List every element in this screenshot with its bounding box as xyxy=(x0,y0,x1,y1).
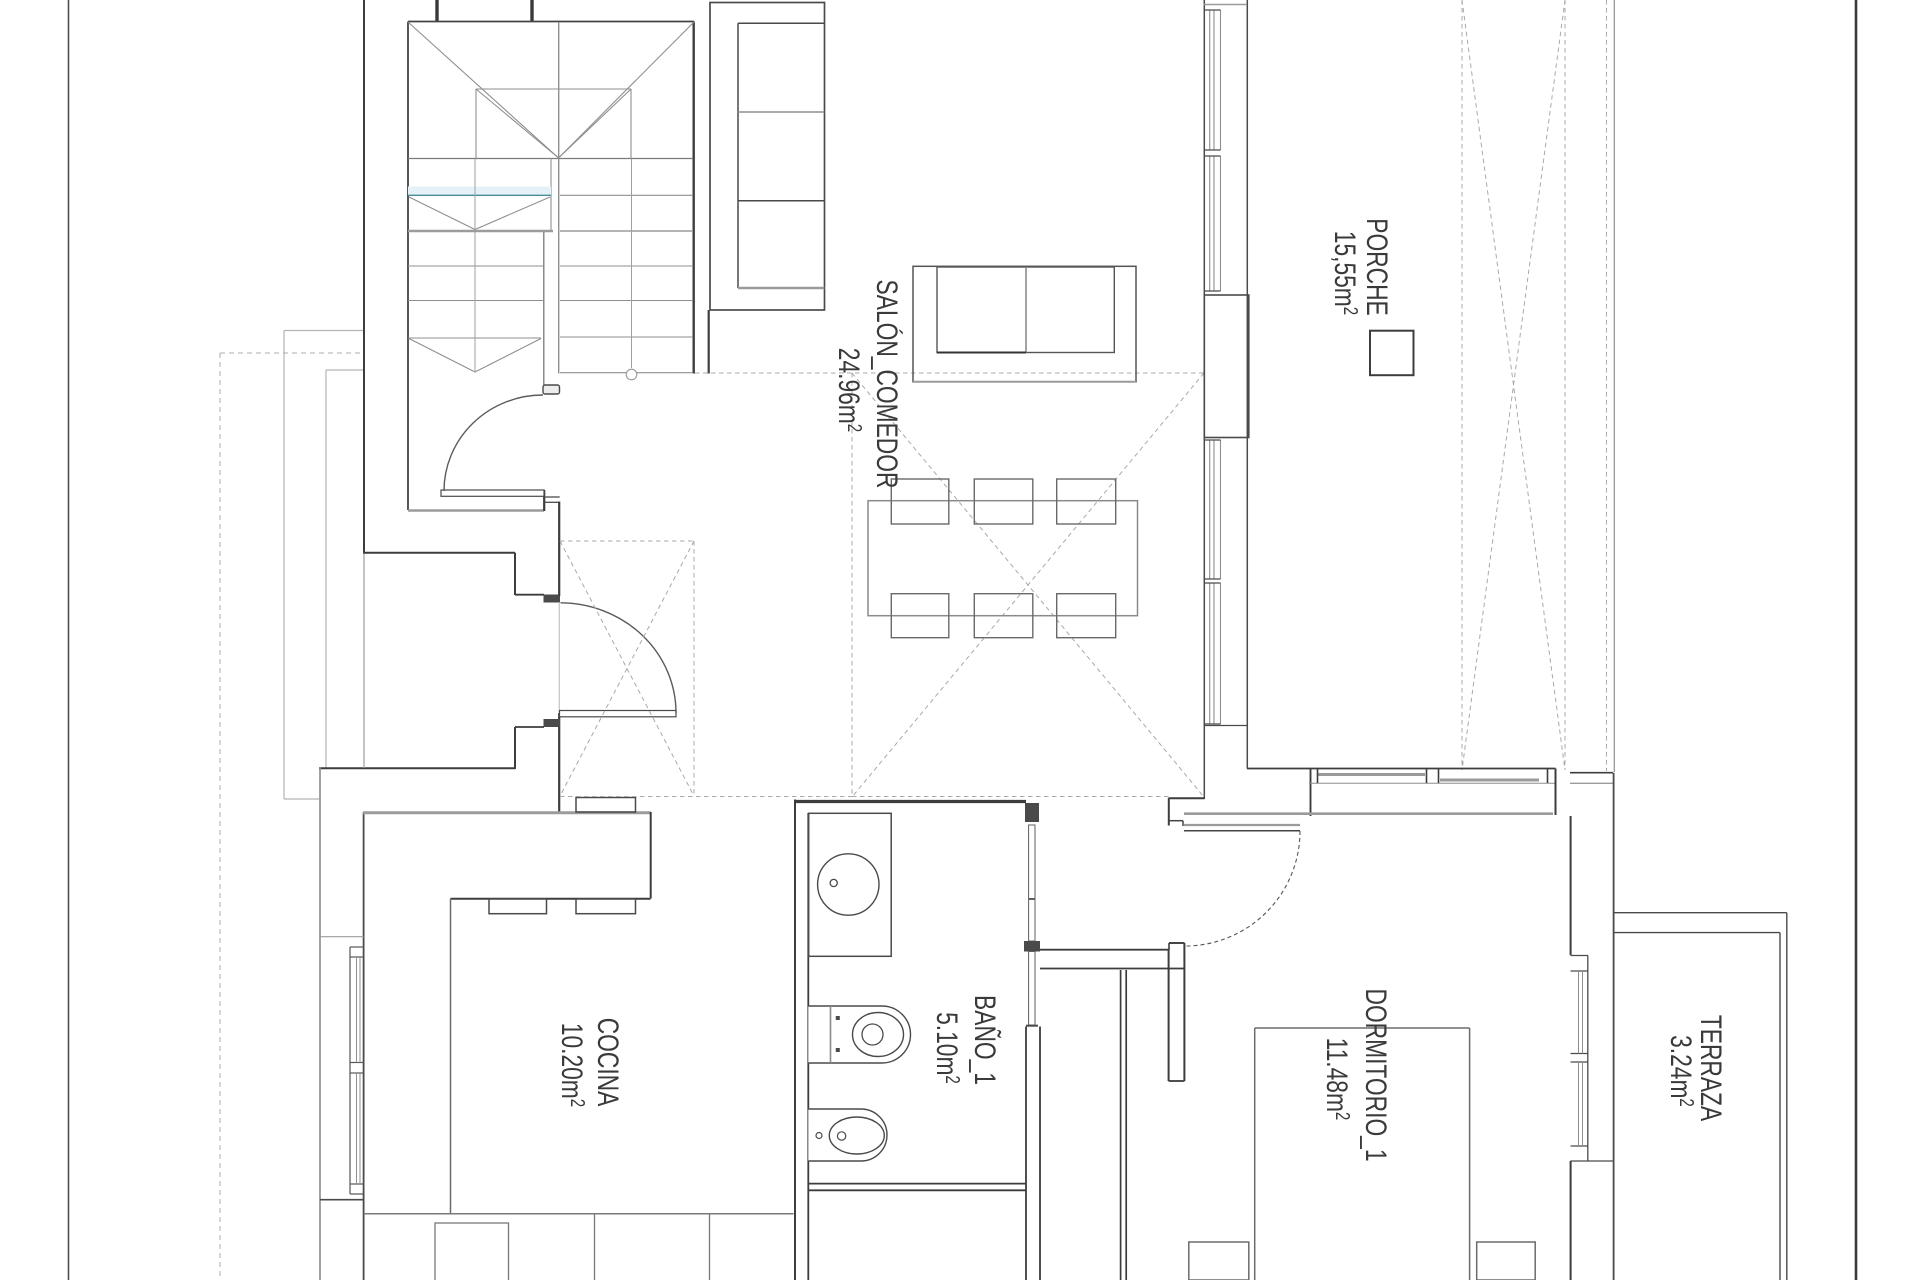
svg-text:10.20m2: 10.20m2 xyxy=(555,1023,589,1107)
svg-text:DORMITORIO_1: DORMITORIO_1 xyxy=(1359,988,1393,1161)
svg-text:5.10m2: 5.10m2 xyxy=(930,1012,964,1084)
svg-text:SALÓN_COMEDOR: SALÓN_COMEDOR xyxy=(870,280,904,489)
svg-text:3.24m2: 3.24m2 xyxy=(1664,1035,1698,1107)
svg-text:11.48m2: 11.48m2 xyxy=(1320,1038,1354,1121)
svg-text:24.96m2: 24.96m2 xyxy=(832,348,866,432)
svg-text:15,55m2: 15,55m2 xyxy=(1328,231,1362,315)
svg-text:PORCHE: PORCHE xyxy=(1360,218,1394,315)
svg-text:COCINA: COCINA xyxy=(591,1018,625,1107)
svg-text:BAÑO_1: BAÑO_1 xyxy=(968,995,1002,1085)
